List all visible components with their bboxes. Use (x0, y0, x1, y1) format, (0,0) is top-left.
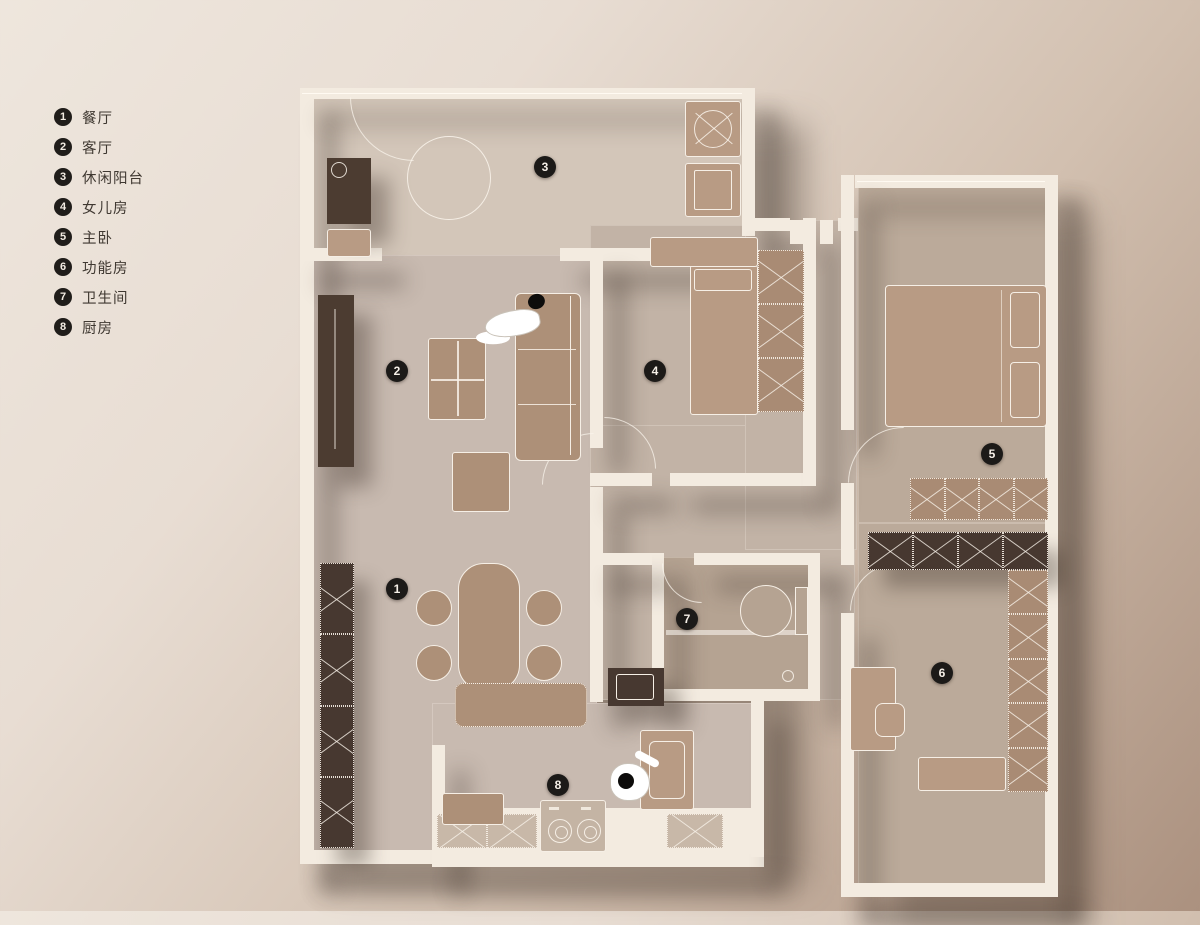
legend-label: 卫生间 (82, 287, 129, 308)
single-bed (690, 265, 758, 415)
legend-number-badge: 1 (54, 108, 72, 126)
legend-item-balcony: 3 休闲阳台 (54, 162, 144, 192)
legend-label: 厨房 (82, 317, 113, 338)
dining-storage-cabinet (320, 563, 354, 848)
balcony-bench (327, 229, 371, 257)
wall-segment (590, 248, 603, 448)
wall-segment (590, 473, 652, 486)
balcony-cabinet (327, 158, 371, 224)
dining-chair (526, 590, 562, 626)
wall-segment (652, 553, 662, 565)
wall-segment (694, 553, 820, 565)
legend-item-bathroom: 7 卫生间 (54, 282, 144, 312)
ottoman (452, 452, 510, 512)
legend-item-dining: 1 餐厅 (54, 102, 144, 132)
legend-item-function-room: 6 功能房 (54, 252, 144, 282)
legend-label: 餐厅 (82, 107, 113, 128)
legend-number-badge: 6 (54, 258, 72, 276)
dining-table (458, 563, 520, 691)
coffee-table (428, 338, 486, 420)
washing-machine (685, 101, 741, 157)
pillow (694, 269, 752, 291)
dining-chair (416, 590, 452, 626)
double-bed (885, 285, 1047, 427)
legend-label: 主卧 (82, 227, 113, 248)
legend-number-badge: 4 (54, 198, 72, 216)
legend-number-badge: 7 (54, 288, 72, 306)
balcony-round-rug (407, 136, 491, 220)
pillow (1010, 292, 1040, 348)
room-marker-daughter: 4 (644, 360, 666, 382)
dining-bench (455, 683, 587, 727)
wall-segment (841, 523, 854, 565)
legend-label: 客厅 (82, 137, 113, 158)
room-legend: 1 餐厅 2 客厅 3 休闲阳台 4 女儿房 5 主卧 6 功能房 7 卫生间 … (54, 102, 144, 342)
wall-segment (742, 218, 790, 231)
wall-segment (841, 613, 854, 897)
legend-item-master-bedroom: 5 主卧 (54, 222, 144, 252)
room-marker-master: 5 (981, 443, 1003, 465)
floor-plan: 1 2 3 4 5 6 7 8 (290, 85, 1070, 885)
tv-cabinet (318, 295, 354, 467)
legend-label: 女儿房 (82, 197, 129, 218)
room-marker-bathroom: 7 (676, 608, 698, 630)
wall-segment (841, 483, 854, 523)
master-window-wall (855, 175, 1058, 188)
gas-stove (540, 800, 606, 852)
wall-segment (432, 853, 764, 867)
legend-number-badge: 2 (54, 138, 72, 156)
daughter-desk (650, 237, 758, 267)
legend-item-daughter-bedroom: 4 女儿房 (54, 192, 144, 222)
function-wardrobe-right (1008, 570, 1048, 792)
room-marker-living: 2 (386, 360, 408, 382)
function-cabinet-top (868, 532, 1048, 570)
legend-label: 功能房 (82, 257, 129, 278)
daughter-wardrobe (758, 250, 804, 412)
room-marker-kitchen: 8 (547, 774, 569, 796)
function-shelf (918, 757, 1006, 791)
master-wardrobe (910, 478, 1048, 520)
wall-segment (803, 218, 816, 486)
legend-item-kitchen: 8 厨房 (54, 312, 144, 342)
legend-number-badge: 8 (54, 318, 72, 336)
wall-segment (841, 175, 854, 430)
wall-segment (808, 553, 820, 701)
wall-segment (841, 883, 1058, 897)
legend-number-badge: 3 (54, 168, 72, 186)
wall-segment (742, 88, 755, 236)
entry-door-panel (790, 220, 803, 244)
dining-chair (416, 645, 452, 681)
wall-segment (590, 553, 652, 565)
kitchen-island (442, 793, 504, 825)
wall-segment (652, 689, 820, 701)
toilet (740, 583, 808, 639)
dryer (685, 163, 741, 217)
entry-door-panel (820, 220, 833, 244)
floor-plan-page: { "legend": { "items": [ {"num":"1","lab… (0, 0, 1200, 911)
wall-segment (670, 473, 806, 486)
wall-segment (590, 487, 603, 702)
dining-chair (526, 645, 562, 681)
wall-segment (300, 850, 436, 864)
legend-item-living: 2 客厅 (54, 132, 144, 162)
shower-drain (782, 670, 794, 682)
bathroom-vanity (608, 668, 664, 706)
room-marker-balcony: 3 (534, 156, 556, 178)
legend-number-badge: 5 (54, 228, 72, 246)
legend-label: 休闲阳台 (82, 167, 144, 188)
desk-chair (875, 703, 905, 737)
wall-segment (300, 88, 314, 864)
room-marker-dining: 1 (386, 578, 408, 600)
person-standing-icon (606, 757, 656, 807)
pillow (1010, 362, 1040, 418)
room-marker-function: 6 (931, 662, 953, 684)
